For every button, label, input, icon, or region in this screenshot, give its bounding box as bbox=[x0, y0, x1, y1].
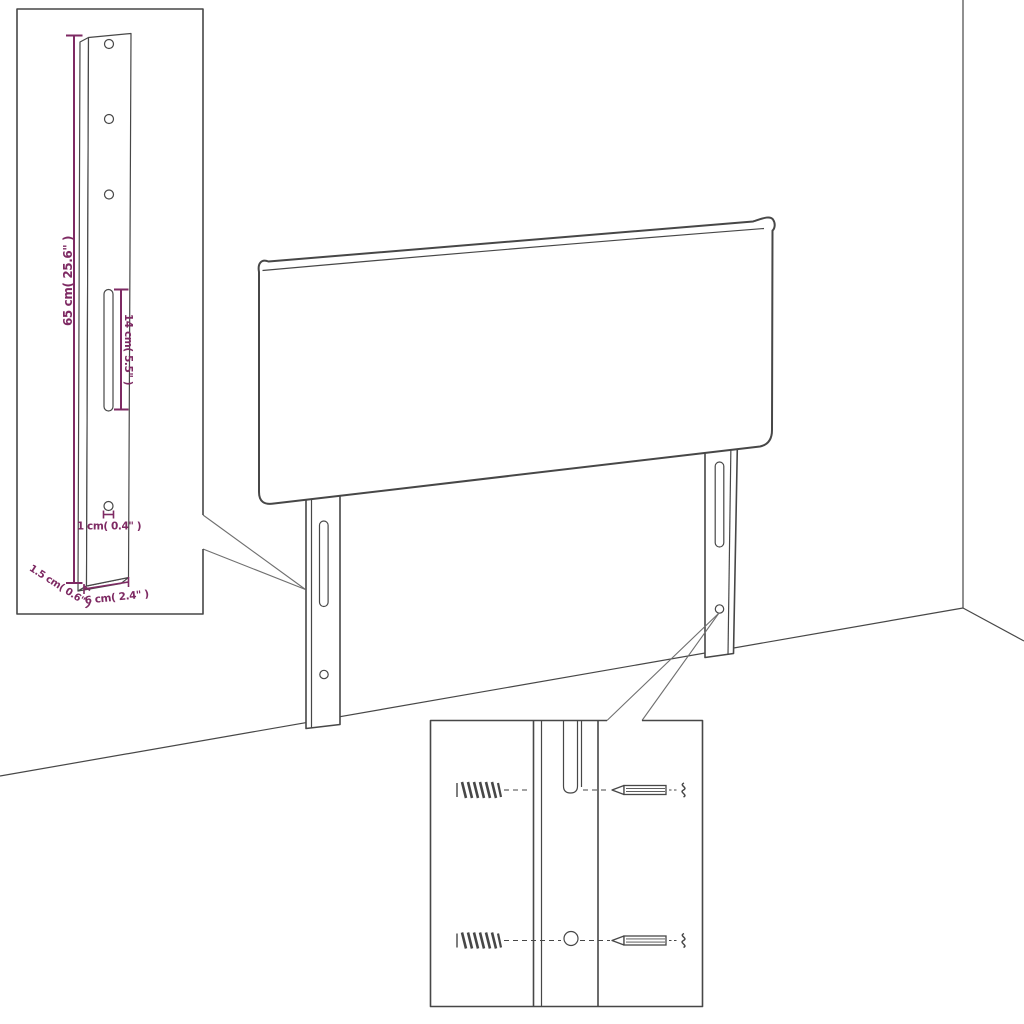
headboard-left-leg bbox=[306, 486, 340, 729]
headboard-dimension-diagram: 65 cm( 25.6" ) 14 cm( 5.5" ) 1 cm( 0.4" … bbox=[0, 0, 1024, 1024]
wall-anchor-bottom bbox=[457, 933, 501, 949]
left-leg-slot bbox=[320, 521, 329, 607]
leg-hole-top-3 bbox=[105, 190, 114, 199]
callout-line-right bbox=[642, 613, 719, 721]
mounting-detail-inset bbox=[431, 721, 703, 1007]
screw-top bbox=[612, 783, 685, 797]
floor-line-left bbox=[0, 608, 963, 776]
screw-bottom bbox=[612, 934, 685, 948]
dimension-label-leg-width: 6 cm( 2.4" ) bbox=[84, 588, 149, 607]
dimension-label-slot-length: 14 cm( 5.5" ) bbox=[122, 314, 134, 385]
leg-strip-closeup bbox=[534, 721, 599, 1006]
right-leg-hole bbox=[715, 605, 723, 613]
callout-line-lower bbox=[203, 549, 306, 590]
headboard-panel bbox=[259, 217, 775, 503]
mounting-inset-border bbox=[431, 721, 703, 1007]
callout-line-upper bbox=[203, 515, 306, 590]
dimension-label-hole-diameter: 1 cm( 0.4" ) bbox=[77, 521, 141, 533]
wall-anchor-top bbox=[457, 782, 501, 798]
leg-hole-top-2 bbox=[105, 115, 114, 124]
leg-detail-drawing bbox=[78, 34, 131, 592]
leg-slot bbox=[104, 290, 113, 412]
diagram-stage: 65 cm( 25.6" ) 14 cm( 5.5" ) 1 cm( 0.4" … bbox=[0, 0, 1024, 1024]
strip-hole bbox=[564, 932, 578, 946]
headboard-right-leg bbox=[705, 438, 738, 658]
left-leg-hole bbox=[320, 670, 328, 678]
leg-hole-top-1 bbox=[105, 40, 114, 49]
strip-slot bbox=[564, 721, 578, 793]
headboard-outline bbox=[259, 217, 775, 503]
dimension-label-leg-height: 65 cm( 25.6" ) bbox=[61, 236, 75, 326]
right-leg-slot bbox=[715, 462, 724, 547]
leg-detail-inset: 65 cm( 25.6" ) 14 cm( 5.5" ) 1 cm( 0.4" … bbox=[17, 9, 203, 614]
leg-hole-bottom bbox=[104, 502, 113, 511]
alignment-dashed-lines bbox=[504, 790, 610, 941]
floor-line-right bbox=[963, 608, 1024, 641]
left-inset-callout-lines bbox=[203, 515, 306, 590]
